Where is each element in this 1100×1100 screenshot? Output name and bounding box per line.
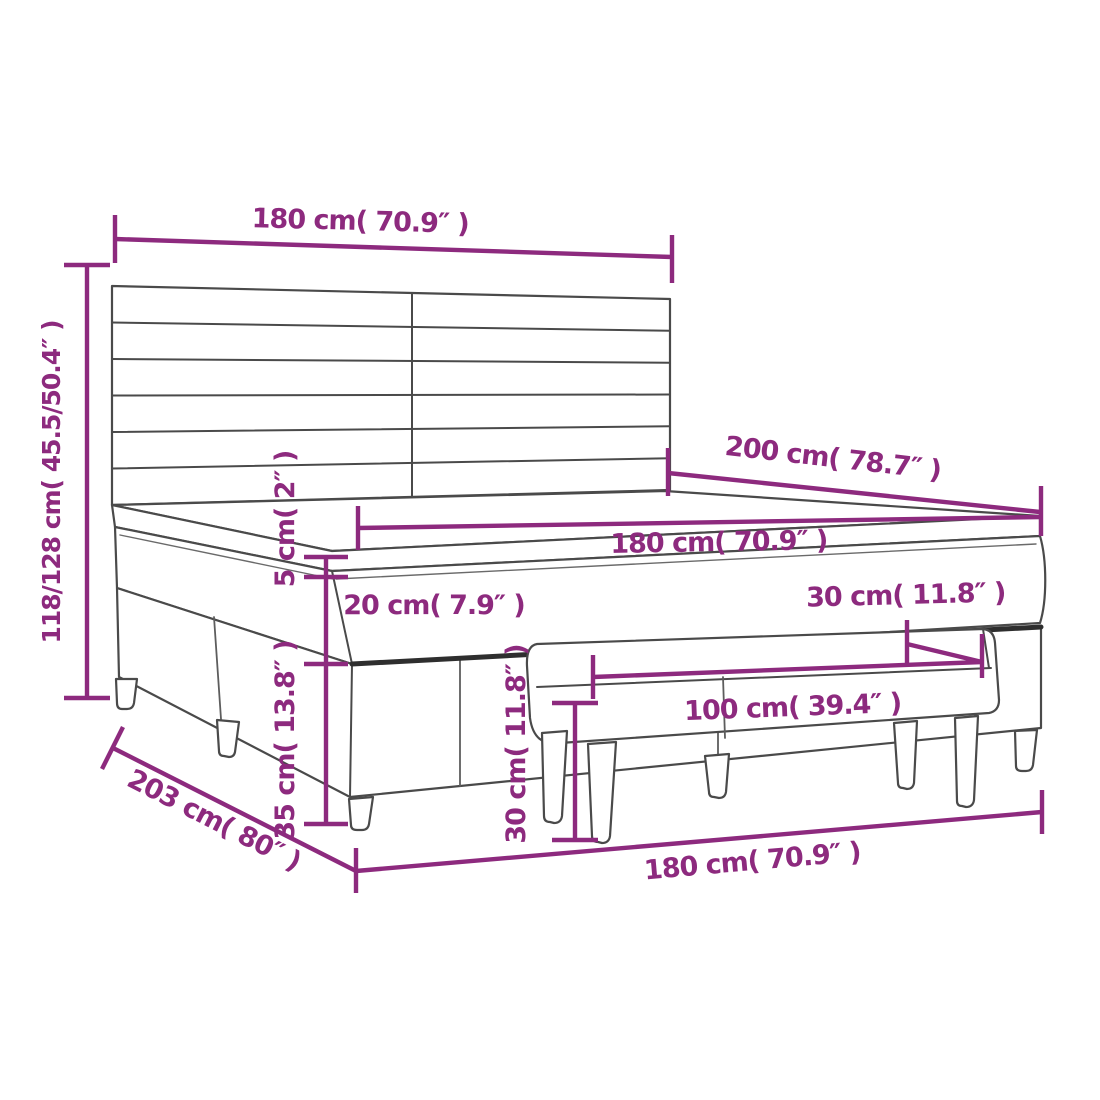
dim-label-mattress-thickness: 20 cm( 7.9″ ): [343, 590, 524, 621]
product-dimension-diagram: 180 cm( 70.9″ ) 118/128 cm( 45.5/50.4″ )…: [0, 0, 1100, 1100]
dim-label-mattress-width: 180 cm( 70.9″ ): [610, 525, 828, 560]
bench-leg: [894, 721, 917, 789]
dim-label-base-height: 35 cm( 13.8″ ): [270, 640, 301, 839]
bed-drawing: [112, 286, 1045, 843]
bed-leg: [349, 797, 373, 830]
headboard: [112, 286, 670, 505]
dim-headboard-width: 180 cm( 70.9″ ): [115, 203, 672, 283]
dim-tick: [102, 727, 123, 769]
bed-leg: [1015, 730, 1037, 771]
bed-leg: [217, 720, 239, 757]
bench-leg: [542, 731, 567, 823]
bench-leg: [955, 716, 978, 807]
dim-label-topper-thickness: 5 cm( 2″ ): [270, 451, 301, 588]
dim-label-headboard-width: 180 cm( 70.9″ ): [251, 203, 469, 240]
headboard-slat: [112, 395, 670, 396]
dim-label-total-height: 118/128 cm( 45.5/50.4″ ): [37, 321, 66, 644]
dim-label-bench-depth: 30 cm( 11.8″ ): [806, 577, 1006, 613]
diagram-canvas: 180 cm( 70.9″ ) 118/128 cm( 45.5/50.4″ )…: [0, 0, 1100, 1100]
dim-total-height: 118/128 cm( 45.5/50.4″ ): [37, 265, 110, 698]
dim-label-bench-height: 30 cm( 11.8″ ): [501, 644, 532, 843]
bed-leg: [116, 679, 137, 709]
bench-leg: [705, 754, 729, 798]
dim-bed-width-floor: 180 cm( 70.9″ ): [356, 790, 1042, 893]
bench-leg: [588, 742, 616, 843]
dim-label-bed-length: 200 cm( 78.7″ ): [723, 431, 942, 486]
dim-line: [115, 239, 672, 257]
